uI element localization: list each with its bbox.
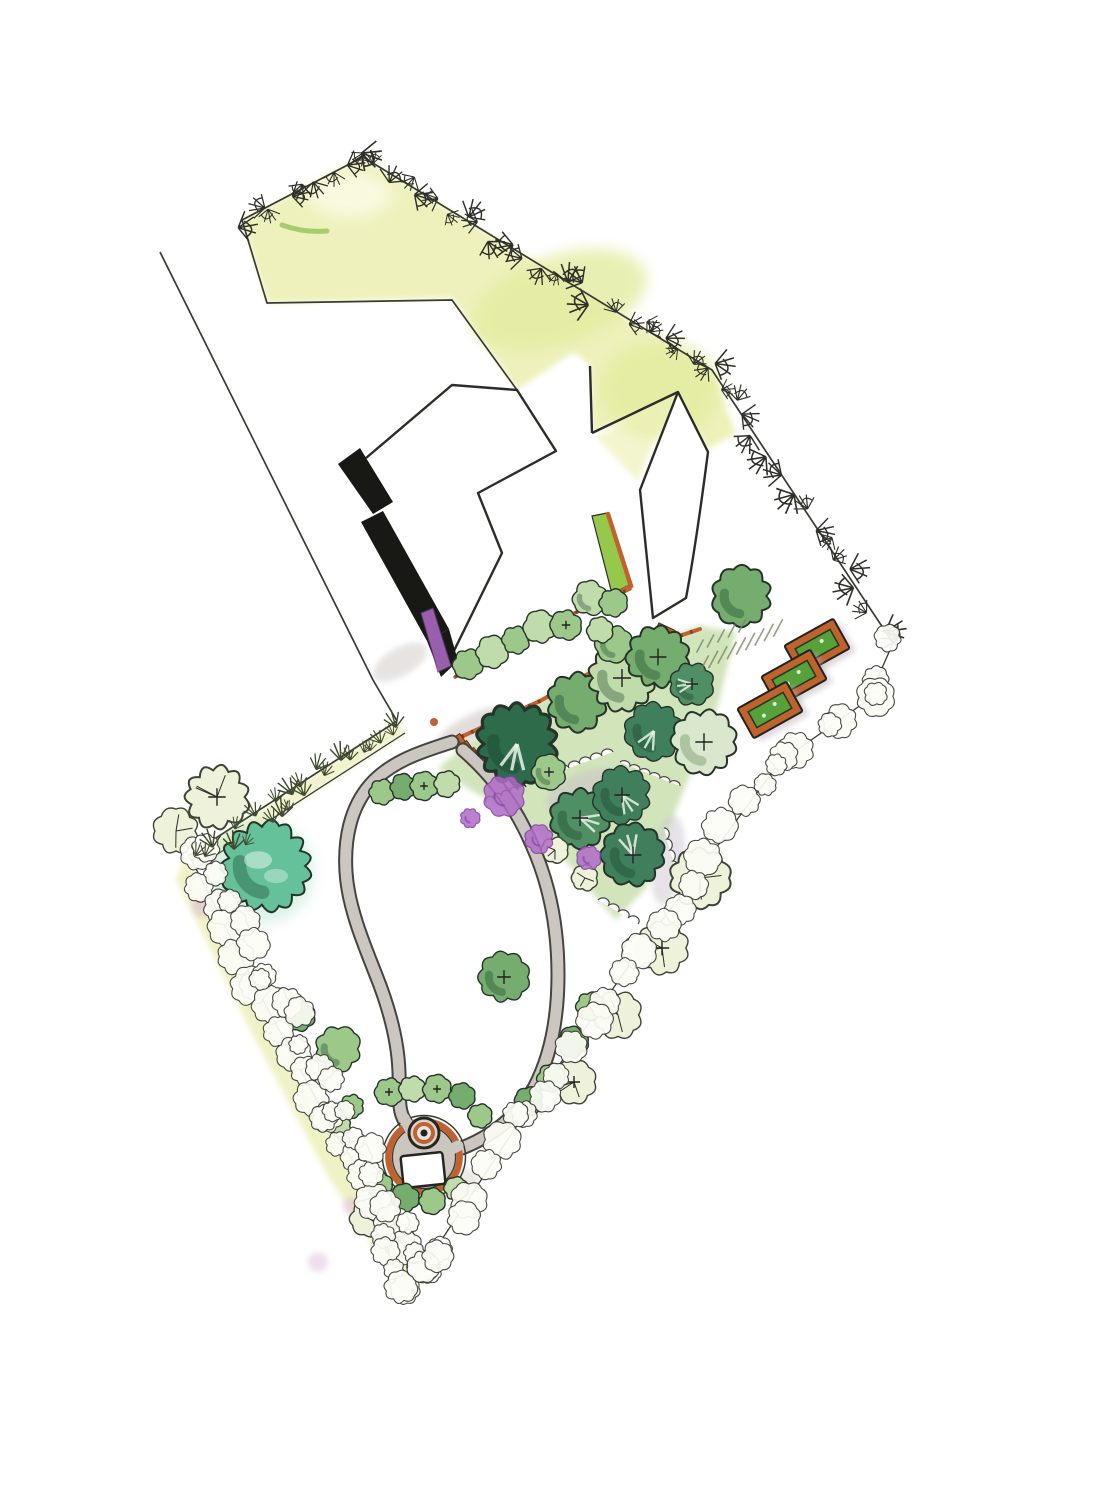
parking-hatch-stroke bbox=[764, 624, 773, 642]
parking-hatch-stroke bbox=[746, 633, 755, 651]
shrub bbox=[468, 1104, 492, 1128]
bench bbox=[400, 1152, 445, 1188]
scanned-plan-page bbox=[0, 0, 1100, 1500]
gray-wash bbox=[367, 635, 433, 689]
fire-pit-center bbox=[421, 1130, 428, 1137]
hedge-sprig bbox=[725, 381, 753, 404]
shrub bbox=[599, 589, 627, 617]
shrub bbox=[399, 1076, 426, 1102]
shrub bbox=[550, 610, 581, 640]
shrub bbox=[369, 779, 395, 805]
hedge-sprig bbox=[847, 595, 873, 622]
parking-hatch-stroke bbox=[736, 637, 745, 655]
pink-wash-blob bbox=[308, 1252, 328, 1272]
shrub bbox=[419, 1188, 445, 1215]
path-west-branch bbox=[346, 742, 452, 1130]
orange-dot bbox=[430, 718, 438, 726]
tree bbox=[712, 565, 770, 627]
parking-hatch-stroke bbox=[773, 619, 782, 637]
site-plan-drawing bbox=[0, 0, 1100, 1500]
hedge-sprig bbox=[826, 541, 852, 568]
hedge-sprig bbox=[849, 553, 871, 584]
purple-flower-mass bbox=[461, 809, 480, 828]
shrub bbox=[586, 617, 612, 643]
grass-tuft bbox=[382, 708, 406, 730]
building-shadow bbox=[338, 448, 393, 514]
shrub bbox=[434, 771, 460, 798]
shrub bbox=[449, 1083, 475, 1109]
lawn-wash-blob bbox=[600, 340, 720, 440]
parking-hatch-stroke bbox=[755, 628, 764, 646]
shrub bbox=[422, 1074, 450, 1103]
tree bbox=[478, 951, 530, 1002]
